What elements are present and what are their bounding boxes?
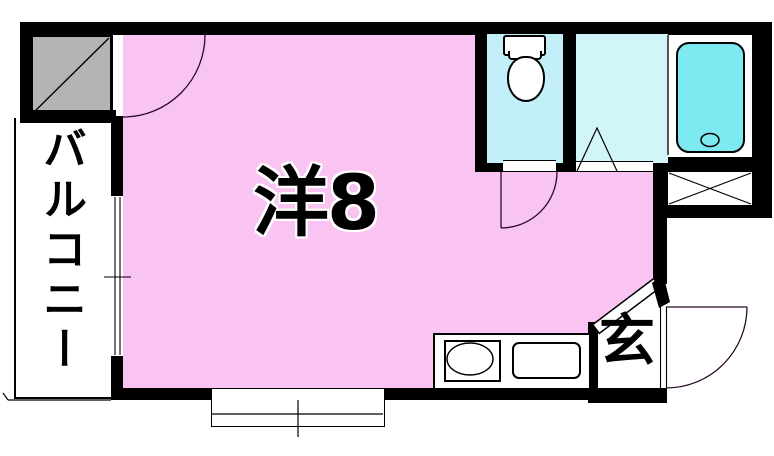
toilet-door-threshold bbox=[503, 160, 556, 172]
outer-wall-right bbox=[752, 22, 772, 218]
wall-below-storage bbox=[20, 110, 116, 123]
balcony-window bbox=[111, 196, 123, 356]
main-room-label: 洋8 bbox=[253, 165, 378, 241]
shaft-bottom-wall bbox=[653, 205, 772, 218]
entrance-door-arc bbox=[666, 307, 747, 388]
bathtub-icon bbox=[676, 42, 745, 153]
toilet-bath-partition bbox=[563, 34, 576, 172]
bathroom-door-threshold bbox=[576, 161, 653, 172]
kitchen-worktop bbox=[512, 342, 581, 379]
toilet-icon-bowl bbox=[507, 56, 545, 102]
toilet-left-wall bbox=[475, 34, 487, 172]
shaft-box bbox=[668, 172, 752, 205]
room-left-wall-upper bbox=[111, 116, 123, 196]
bottom-wall-entrance bbox=[588, 388, 667, 403]
entrance-label: 玄 bbox=[599, 314, 655, 370]
room-left-wall-lower bbox=[111, 356, 123, 390]
balcony-corner-chamfer bbox=[3, 393, 8, 400]
floor-plan: バルコニー 洋8 玄 bbox=[0, 0, 774, 456]
bath-bottom-wall bbox=[653, 155, 772, 172]
bathroom bbox=[576, 34, 668, 163]
balcony-label: バルコニー bbox=[36, 126, 82, 396]
bottom-wall-left bbox=[111, 388, 213, 400]
bottom-window bbox=[211, 388, 385, 427]
room-door-leaf bbox=[113, 34, 123, 112]
kitchen-sink-surround bbox=[444, 340, 501, 382]
outer-wall-left-upper bbox=[20, 22, 32, 118]
storage-box bbox=[30, 34, 113, 116]
wall-below-shaft bbox=[653, 218, 667, 284]
